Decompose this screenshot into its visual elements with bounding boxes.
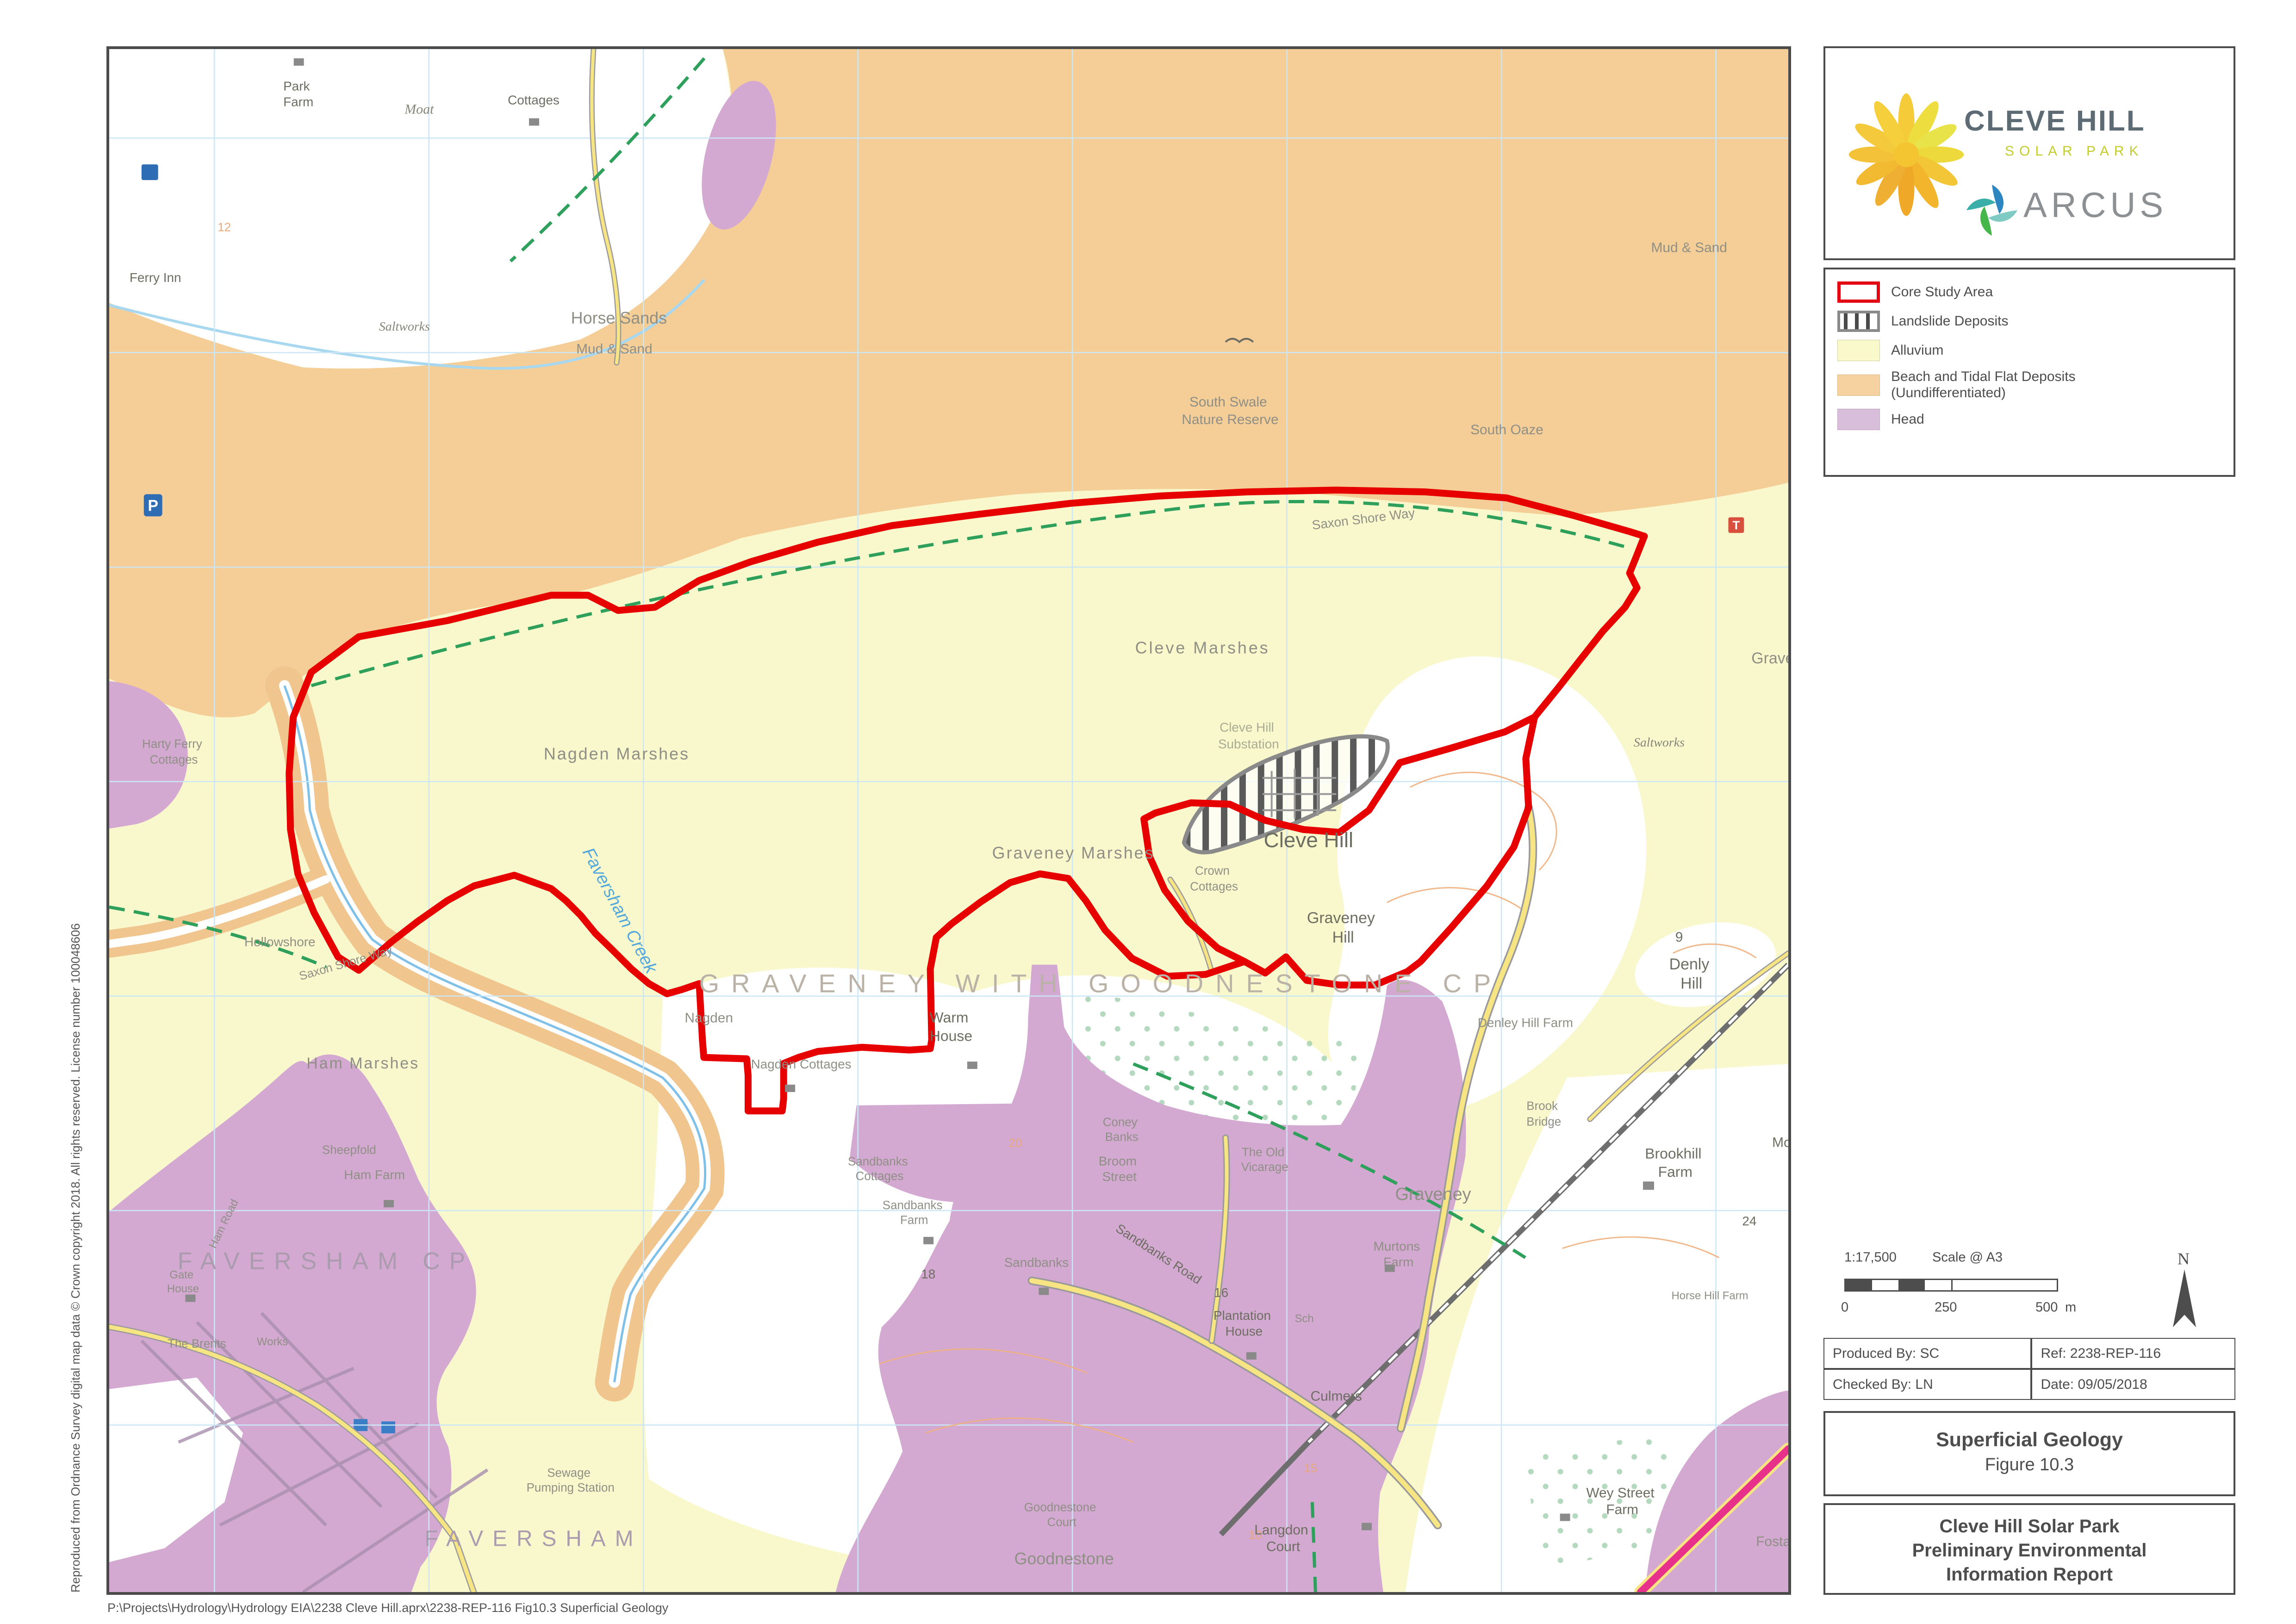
map-label-works: Works (257, 1336, 288, 1348)
map-label-16: 16 (1214, 1285, 1228, 1299)
map-label-the-brents: The Brents (168, 1337, 226, 1350)
map-label-horse-sands: Horse Sands (571, 309, 667, 327)
north-arrow-icon (2171, 1269, 2198, 1334)
figure-number: Figure 10.3 (1825, 1455, 2234, 1475)
map-label-ham-marshes: Ham Marshes (306, 1055, 419, 1072)
solar-park-wordmark: SOLAR PARK (2005, 144, 2144, 159)
map-label-24: 24 (1742, 1214, 1756, 1228)
north-label: N (2178, 1249, 2190, 1268)
landslide-swatch (1837, 311, 1880, 332)
legend-item-landslide: Landslide Deposits (1837, 311, 2234, 332)
alluvium-swatch (1837, 340, 1880, 361)
map-label-graveney-ne: Graveney (1751, 650, 1788, 667)
legend-panel: Core Study Area Landslide Deposits Alluv… (1823, 268, 2235, 477)
map-frame: P T Park Farm Moat Cottages Ferry Inn Sa… (106, 46, 1791, 1595)
map-label-graveney-village: Graveney (1395, 1185, 1471, 1204)
report-title-line1: Cleve Hill Solar Park (1825, 1514, 2234, 1538)
scale-tick-500: 500 (2035, 1300, 2058, 1315)
produced-by-cell: Produced By: SC (1823, 1338, 2031, 1369)
figure-sheet: Reproduced from Ordnance Survey digital … (0, 0, 2296, 1624)
scale-tick-0: 0 (1841, 1300, 1848, 1315)
map-label-contour20: 20 (1009, 1137, 1022, 1149)
scale-ratio: 1:17,500 (1844, 1250, 1897, 1265)
figure-title-panel: Superficial Geology Figure 10.3 (1823, 1411, 2235, 1496)
map-label-contour15: 15 (1304, 1462, 1317, 1475)
date-cell: Date: 09/05/2018 (2031, 1369, 2235, 1400)
scale-tick-250: 250 (1935, 1300, 1957, 1315)
map-label-ferry-inn: Ferry Inn (130, 270, 181, 285)
map-label-cottages-nw: Cottages (508, 93, 560, 107)
cleve-hill-wordmark: CLEVE HILL (1964, 105, 2146, 137)
map-label-goodnestone: Goodnestone (1014, 1549, 1114, 1568)
map-label-nagden-cottages: Nagden Cottages (751, 1057, 851, 1071)
checked-by-cell: Checked By: LN (1823, 1369, 2031, 1400)
file-path: P:\Projects\Hydrology\Hydrology EIA\2238… (107, 1601, 668, 1615)
legend-item-head: Head (1837, 409, 2234, 430)
map-label-moat: Moat (404, 102, 434, 117)
arcus-swirl-icon (1964, 182, 2020, 238)
map-label-denly-spot: 9 (1675, 930, 1683, 945)
map-label-hollowshore: Hollowshore (244, 935, 315, 949)
meta-table: Produced By: SC Ref: 2238-REP-116 Checke… (1823, 1338, 2235, 1400)
report-title-line3: Information Report (1825, 1562, 2234, 1587)
map-label-mud-sand-ne: Mud & Sand (1651, 240, 1727, 255)
map-label-cleve-marshes: Cleve Marshes (1135, 638, 1270, 657)
report-title-panel: Cleve Hill Solar Park Preliminary Enviro… (1823, 1503, 2235, 1595)
map-label-south-oaze: South Oaze (1470, 422, 1543, 437)
figure-title: Superficial Geology (1825, 1429, 2234, 1451)
map-label-ham-farm: Ham Farm (344, 1168, 405, 1182)
ref-cell: Ref: 2238-REP-116 (2031, 1338, 2235, 1369)
map-label-horse-sands-sub: Mud & Sand (576, 342, 652, 357)
map-label-contour12: 12 (218, 221, 231, 234)
beach-tidal-swatch (1837, 375, 1880, 396)
map-label-horse-hill-farm: Horse Hill Farm (1672, 1289, 1748, 1302)
map-label-school: Sch (1295, 1312, 1314, 1325)
legend-item-alluvium: Alluvium (1837, 340, 2234, 361)
scale-at: Scale @ A3 (1932, 1250, 2003, 1265)
scale-bar (1844, 1279, 2058, 1292)
scale-unit: m (2065, 1300, 2076, 1315)
svg-text:T: T (1732, 519, 1740, 532)
map-label-fostall: Fostall (1756, 1534, 1788, 1549)
map-label-saltworks-nw: Saltworks (379, 319, 430, 334)
map-label-parish-cp: GRAVENEY WITH GOODNESTONE CP (699, 969, 1503, 998)
legend-item-core-study-area: Core Study Area (1837, 281, 2234, 303)
core-study-area-swatch (1837, 281, 1880, 303)
head-swatch (1837, 409, 1880, 430)
os-copyright-text: Reproduced from Ordnance Survey digital … (68, 923, 83, 1593)
report-title-line2: Preliminary Environmental (1825, 1538, 2234, 1562)
map-label-faversham-cp: FAVERSHAM CP (178, 1248, 474, 1274)
map-label-nagden-marshes: Nagden Marshes (544, 744, 690, 763)
map-label-faversham-town: FAVERSHAM (425, 1526, 643, 1551)
map-label-monkshill: Mo (1772, 1135, 1788, 1150)
map-label-sheepfold: Sheepfold (322, 1143, 376, 1156)
map-label-culmers: Culmers (1311, 1388, 1362, 1404)
svg-text:P: P (148, 497, 158, 514)
pub-icon (142, 164, 158, 180)
map-label-graveney-marshes: Graveney Marshes (992, 844, 1155, 862)
logo-panel: CLEVE HILL SOLAR PARK ARCUS (1823, 46, 2235, 260)
map-label-cleve-hill: Cleve Hill (1264, 828, 1354, 852)
map-label-nagden: Nagden (684, 1010, 733, 1025)
map-label-18: 18 (921, 1267, 935, 1281)
map-label-denley-hill-farm: Denley Hill Farm (1478, 1015, 1573, 1030)
geology-map: P T Park Farm Moat Cottages Ferry Inn Sa… (109, 49, 1788, 1592)
map-label-sandbanks: Sandbanks (1004, 1255, 1069, 1270)
map-label-saltworks-e: Saltworks (1634, 736, 1685, 750)
arcus-wordmark: ARCUS (2023, 185, 2167, 225)
cleve-hill-sun-logo (1844, 87, 1969, 222)
legend-item-beach-tidal: Beach and Tidal Flat Deposits (Uundiffer… (1837, 369, 2234, 401)
